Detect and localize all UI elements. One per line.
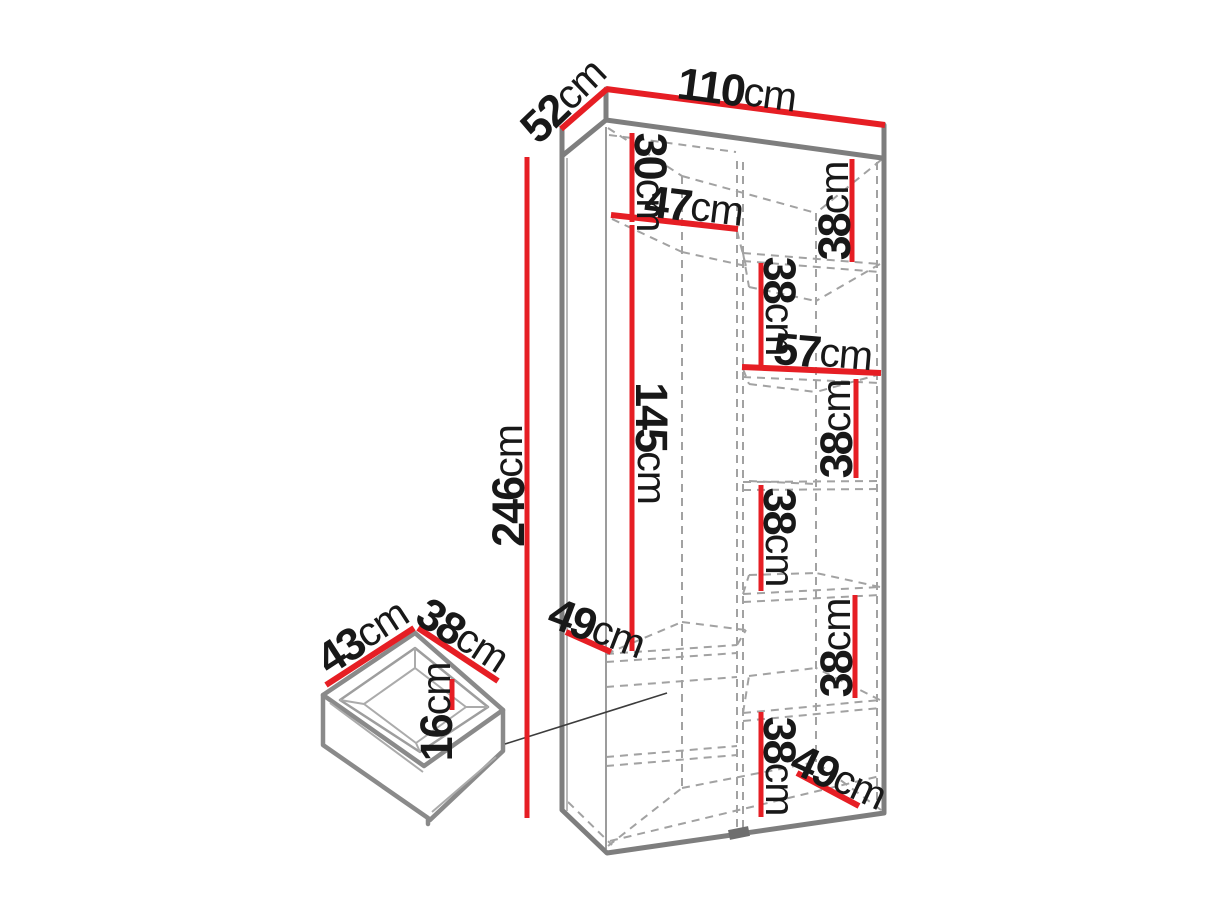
- dim-unit: cm: [629, 451, 675, 504]
- left-drawer-compartment-dashed: [568, 677, 737, 845]
- dimension-labels: 110cm 52cm 246cm 30cm 47cm 38cm 38cm 57c…: [307, 47, 895, 821]
- dim-unit: cm: [688, 183, 746, 235]
- dim-value: 38: [811, 431, 862, 478]
- dim-unit: cm: [818, 329, 874, 379]
- dim-unit: cm: [813, 380, 859, 433]
- dim-label-gap3: 38cm: [811, 380, 862, 479]
- dim-unit: cm: [811, 162, 857, 215]
- dim-value: 47: [642, 175, 695, 231]
- dim-value: 38: [755, 257, 806, 304]
- door-gap-notch: [729, 831, 749, 835]
- dim-label-gap4: 38cm: [755, 488, 806, 587]
- drawer-label-height: 16cm: [411, 663, 462, 762]
- dim-label-gap1: 38cm: [809, 162, 860, 261]
- dim-unit: cm: [413, 663, 459, 716]
- dim-unit: cm: [757, 534, 803, 587]
- dim-label-gap5: 38cm: [811, 599, 862, 698]
- dim-label-width: 110cm: [675, 57, 800, 123]
- dim-label-hanging: 145cm: [627, 382, 678, 504]
- dim-value: 30: [626, 133, 677, 180]
- dim-label-right-width: 57cm: [772, 322, 875, 381]
- dim-value: 110: [675, 57, 749, 116]
- dim-label-left-depth: 49cm: [542, 587, 652, 670]
- diagram-canvas: 110cm 52cm 246cm 30cm 47cm 38cm 38cm 57c…: [0, 0, 1214, 911]
- top-front-edge: [562, 120, 882, 158]
- dim-unit: cm: [741, 68, 799, 120]
- dim-value: 246: [483, 477, 534, 547]
- center-partition-dashed: [737, 161, 743, 830]
- dim-value: 16: [411, 714, 462, 761]
- wardrobe-dimension-diagram: 110cm 52cm 246cm 30cm 47cm 38cm 38cm 57c…: [0, 0, 1214, 911]
- dim-label-height: 246cm: [483, 425, 534, 547]
- dim-unit: cm: [813, 599, 859, 652]
- dim-value: 57: [772, 322, 823, 377]
- dim-value: 38: [809, 213, 860, 260]
- dim-value: 145: [627, 382, 678, 452]
- dim-value: 38: [755, 488, 806, 535]
- dim-value: 38: [811, 650, 862, 697]
- dim-unit: cm: [485, 425, 531, 478]
